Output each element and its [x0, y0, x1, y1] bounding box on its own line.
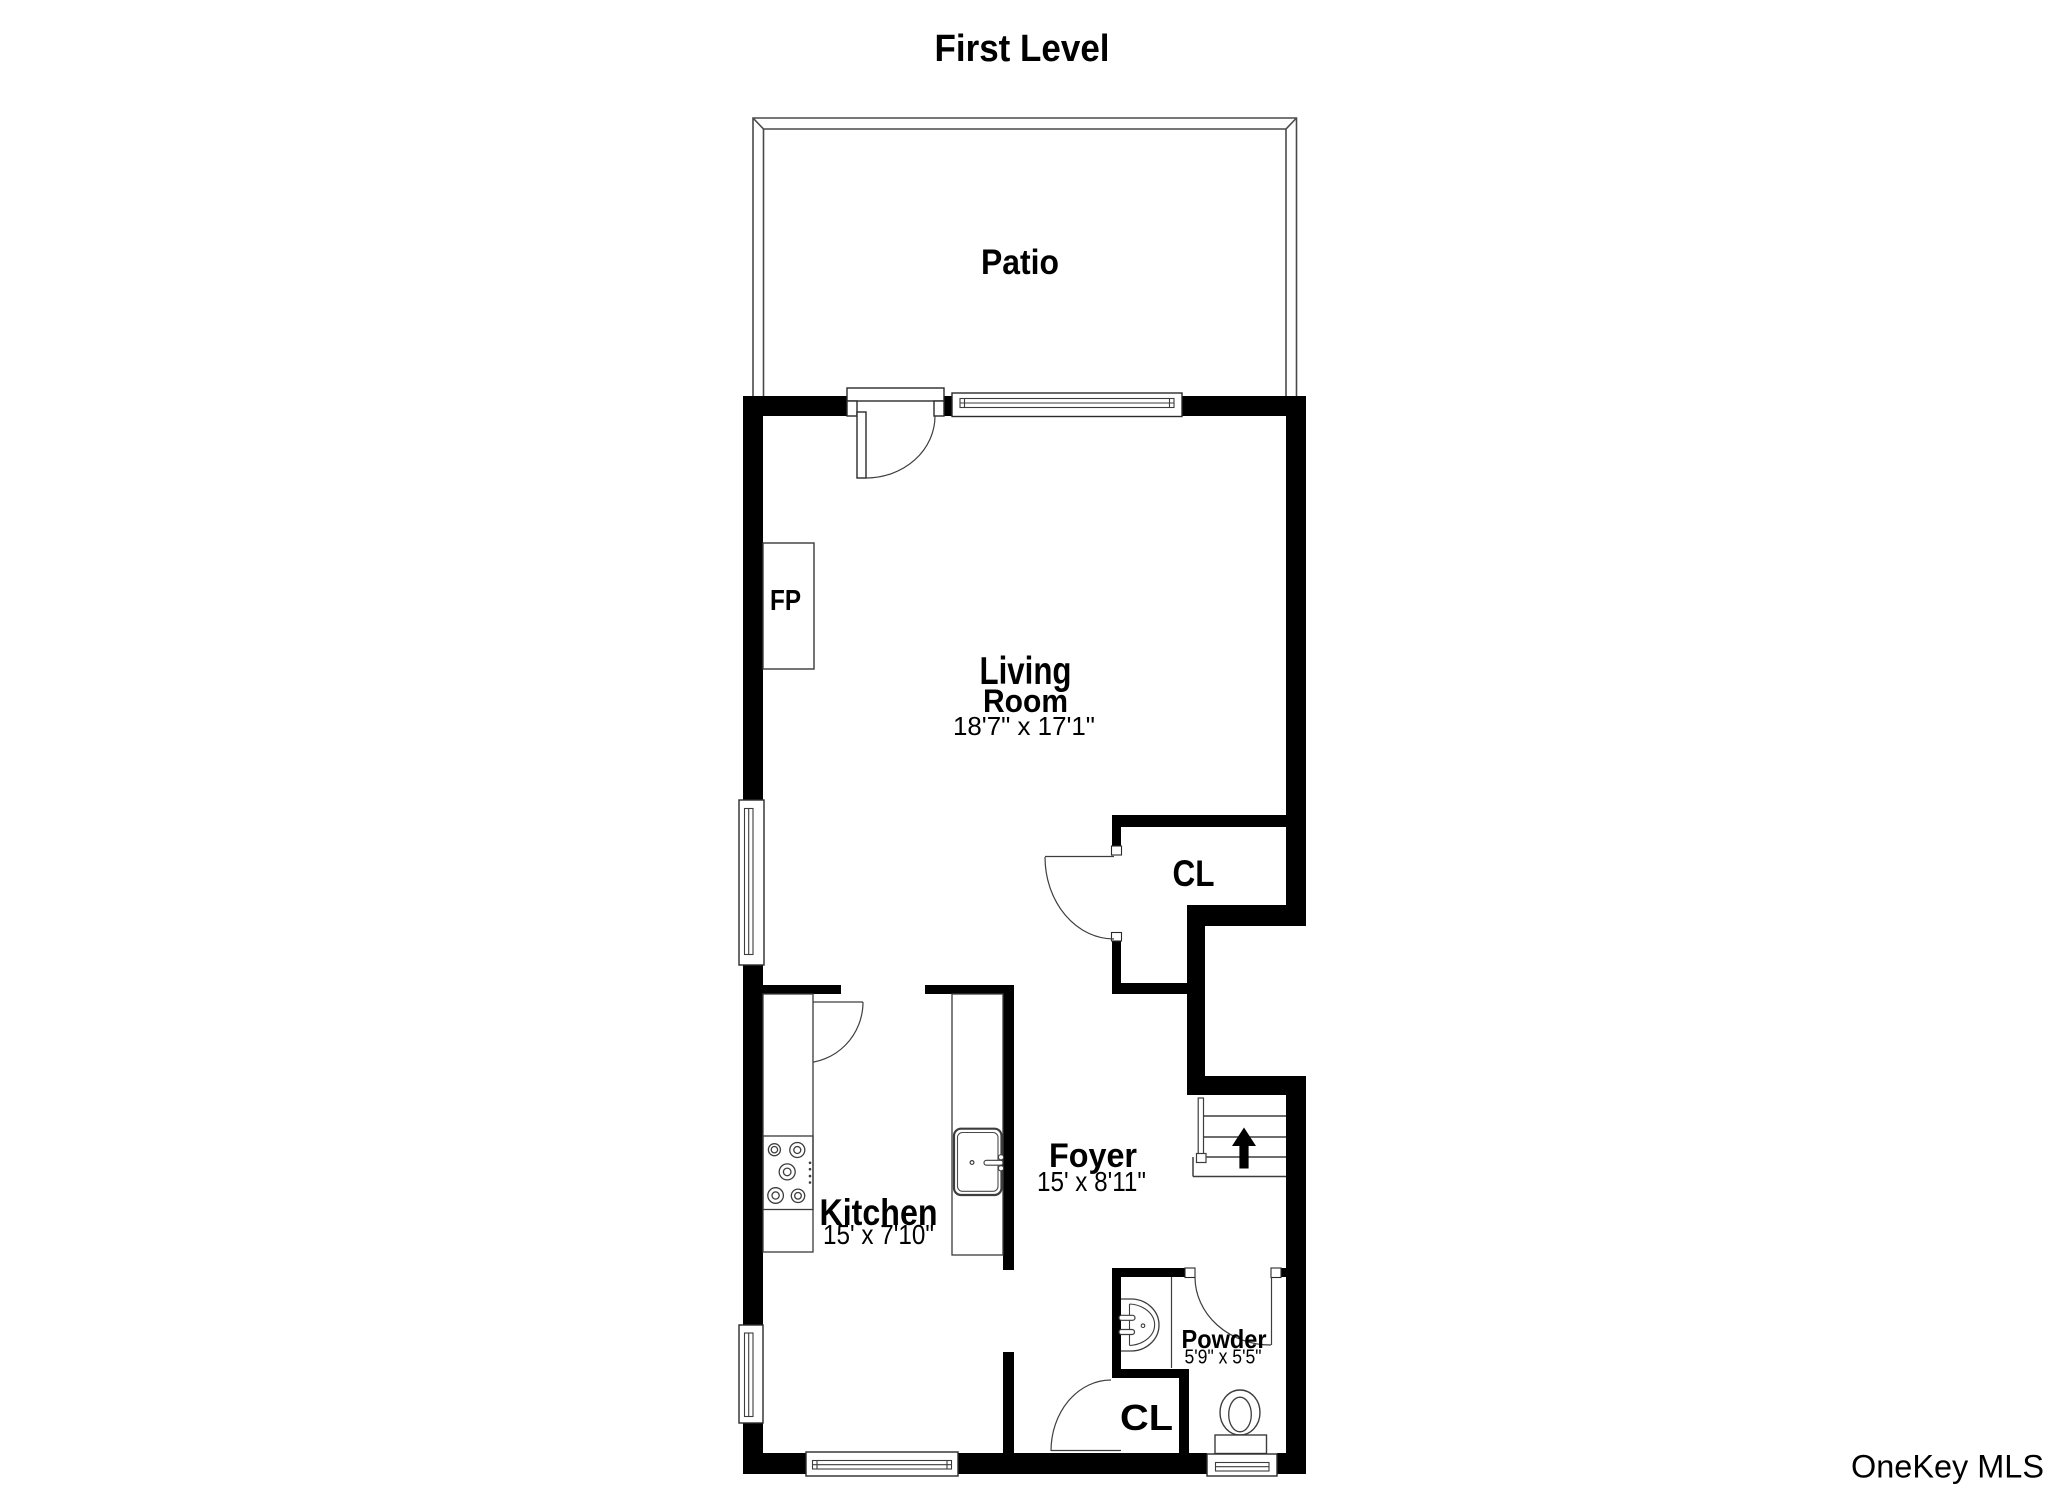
svg-text:5'9" x 5'5": 5'9" x 5'5" — [1185, 1347, 1262, 1369]
svg-text:Patio: Patio — [981, 243, 1059, 282]
svg-text:15' x 7'10": 15' x 7'10" — [823, 1219, 934, 1250]
svg-text:CL: CL — [1173, 853, 1215, 894]
svg-text:15' x 8'11": 15' x 8'11" — [1037, 1166, 1146, 1197]
svg-text:CL: CL — [1120, 1397, 1173, 1438]
svg-text:OneKey MLS: OneKey MLS — [1851, 1449, 2044, 1485]
svg-text:18'7" x 17'1": 18'7" x 17'1" — [953, 711, 1095, 741]
svg-text:FP: FP — [770, 585, 801, 617]
svg-text:First Level: First Level — [935, 28, 1110, 70]
